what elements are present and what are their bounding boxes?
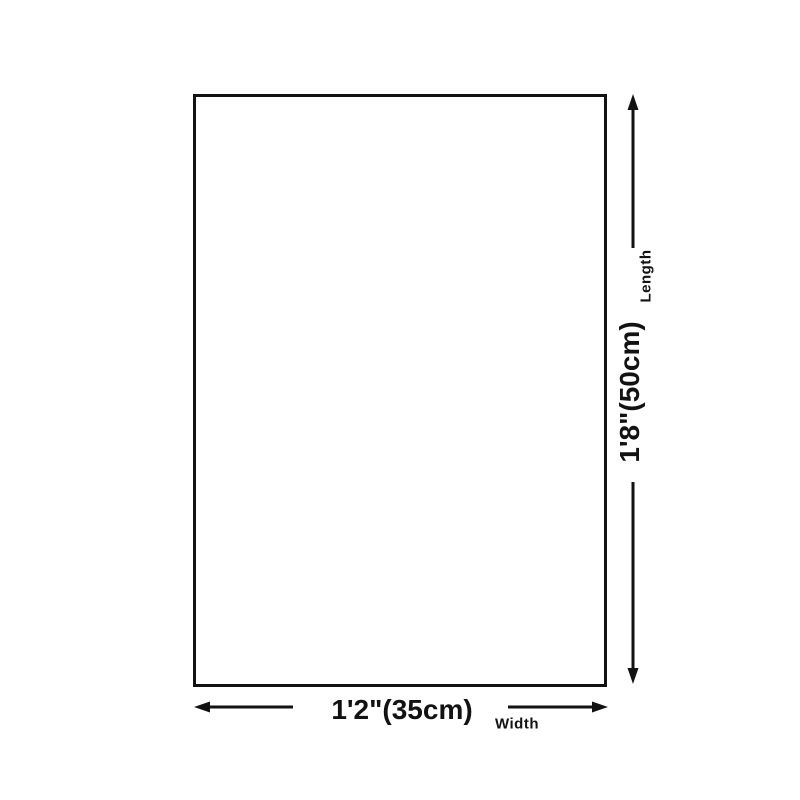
down-arrow-icon — [628, 482, 639, 684]
length-dimension-label: Length — [638, 250, 655, 303]
right-arrow-icon — [508, 702, 608, 713]
product-dimension-diagram: 1'8"(50cm) Length 1'2"(35cm) Width — [0, 0, 800, 800]
product-rectangle — [193, 94, 607, 687]
width-dimension-value: 1'2"(35cm) — [331, 694, 472, 726]
length-dimension-value: 1'8"(50cm) — [614, 321, 646, 462]
up-arrow-icon — [628, 94, 639, 248]
width-dimension-label: Width — [495, 716, 539, 733]
left-arrow-icon — [194, 702, 293, 713]
